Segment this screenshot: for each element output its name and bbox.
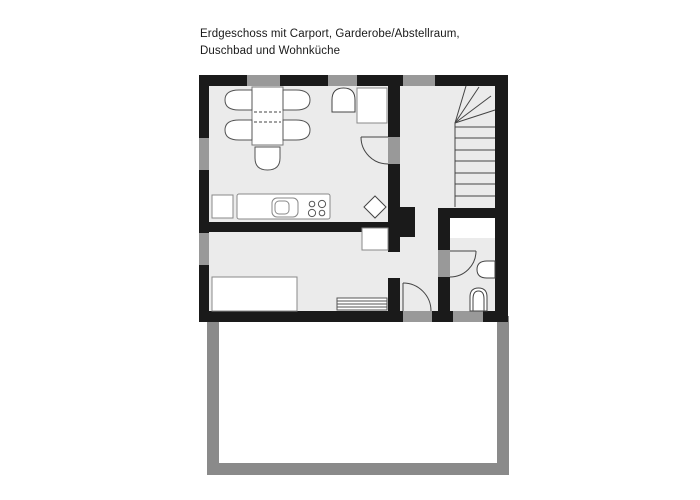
shower-area (450, 218, 495, 238)
couch (212, 277, 297, 311)
washbasin (477, 261, 495, 278)
cabinet-box (362, 228, 388, 250)
window-left-1 (199, 138, 209, 170)
wash-basin-unit (332, 88, 355, 112)
dining-table (252, 87, 283, 145)
entry-door-threshold (403, 311, 432, 322)
kitchen-cabinet (212, 195, 233, 218)
window-top-3 (403, 75, 435, 86)
wall-left (199, 75, 209, 322)
chair (255, 147, 280, 170)
kitchen-door-opening (388, 137, 400, 164)
wall-partition-lower (388, 278, 400, 311)
chair (225, 90, 252, 110)
window-left-2 (199, 233, 209, 265)
window-bottom-bath (453, 311, 483, 322)
floor-plan-page: Erdgeschoss mit Carport, Garderobe/Abste… (0, 0, 700, 500)
window-top-2 (328, 75, 357, 86)
wall-bath-top (438, 208, 497, 218)
bath-door-opening (438, 250, 450, 277)
chair (225, 120, 252, 140)
carport-floor (219, 316, 497, 463)
chair (283, 90, 310, 110)
window-top-1 (247, 75, 280, 86)
appliance-box (357, 88, 387, 123)
wall-right (495, 75, 508, 322)
chimney-block (400, 207, 415, 237)
chair (283, 120, 310, 140)
floor-plan-drawing (0, 0, 700, 500)
